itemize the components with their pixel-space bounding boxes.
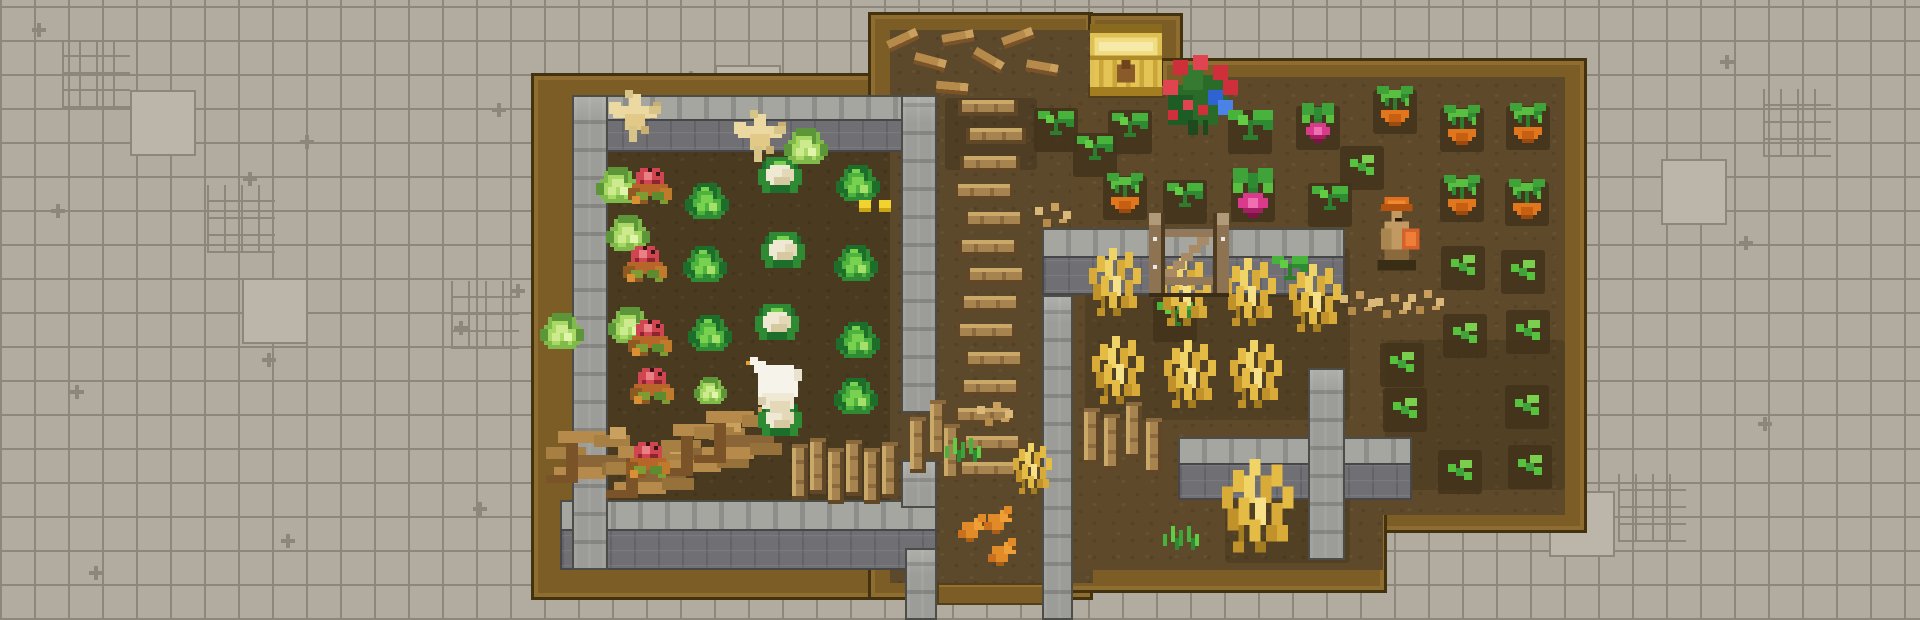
- tomato-sprite[interactable]: [628, 168, 672, 216]
- sprout-sprite[interactable]: [1516, 320, 1540, 340]
- sprout-sprite[interactable]: [1393, 398, 1417, 418]
- feed-sprite: [977, 402, 1017, 426]
- floor-plus-motif: [94, 566, 98, 580]
- plank-v-sprite: [1084, 408, 1100, 464]
- plank-v-sprite: [1146, 418, 1162, 474]
- hay-sprite[interactable]: [1164, 340, 1216, 408]
- plank-h-sprite: [956, 324, 1016, 340]
- floor-plus-motif: [56, 204, 60, 218]
- carrot-sprite[interactable]: [1373, 86, 1417, 130]
- plank-v-sprite: [810, 438, 826, 494]
- feed-sprite: [1408, 290, 1448, 314]
- plank-h-sprite: [958, 240, 1018, 256]
- hay-sprite[interactable]: [1230, 340, 1282, 408]
- carrot-sprite[interactable]: [1505, 179, 1549, 223]
- floor-smallgrid-tile: [62, 40, 130, 108]
- seedling-sprite[interactable]: [1112, 113, 1148, 145]
- chick-sprite[interactable]: [958, 514, 986, 542]
- stone-wall-cap: [1178, 437, 1412, 463]
- cabbage-light-sprite[interactable]: [540, 313, 584, 353]
- cabbage-sprite[interactable]: [688, 315, 732, 355]
- plank-h-sprite: [964, 212, 1024, 228]
- plank-h-sprite: [960, 380, 1020, 396]
- floor-highlight-tile: [130, 90, 196, 156]
- feed-sprite: [1340, 291, 1380, 315]
- sprout-sprite[interactable]: [1451, 255, 1475, 275]
- cauliflower-sprite[interactable]: [755, 300, 799, 344]
- tomato-sprite[interactable]: [628, 320, 672, 368]
- floor-plus-motif: [248, 172, 252, 186]
- cabbage-light-sprite[interactable]: [784, 128, 828, 168]
- chest-sprite[interactable]: [1090, 24, 1162, 96]
- plank-v-sprite: [792, 444, 808, 500]
- cabbage-sprite[interactable]: [834, 245, 878, 285]
- floor-highlight-tile: [242, 278, 308, 344]
- sprout-sprite[interactable]: [1515, 395, 1539, 415]
- gate-sprite[interactable]: [1149, 213, 1229, 297]
- hay-sprite[interactable]: [1289, 264, 1341, 332]
- plank-v-sprite: [1104, 414, 1120, 470]
- seedling-sprite[interactable]: [1312, 186, 1348, 218]
- cauliflower-sprite[interactable]: [761, 228, 805, 272]
- hay-sprite[interactable]: [1013, 443, 1052, 494]
- sprout-sprite[interactable]: [1511, 260, 1535, 280]
- feed-sprite: [1035, 203, 1075, 227]
- cabbage-sprite[interactable]: [685, 183, 729, 223]
- stone-wall: [1178, 463, 1412, 500]
- floor-plus-motif: [286, 534, 290, 548]
- sprout-sprite[interactable]: [1448, 460, 1472, 480]
- floor-plus-motif: [497, 103, 501, 117]
- plank-v-sprite: [1126, 402, 1142, 458]
- floor-plus-motif: [37, 23, 41, 37]
- dwarf-sprite[interactable]: [1374, 197, 1420, 274]
- plank-v-sprite: [864, 448, 880, 504]
- cabbage-sprite[interactable]: [683, 246, 727, 286]
- floor-plus-motif: [75, 385, 79, 399]
- bird-cream-sprite[interactable]: [605, 90, 665, 150]
- seedling-sprite[interactable]: [1077, 136, 1113, 168]
- seedling-sprite[interactable]: [1167, 183, 1203, 215]
- chick-sprite[interactable]: [988, 538, 1016, 566]
- floor-plus-motif: [1744, 236, 1748, 250]
- plank-h-sprite: [964, 352, 1024, 368]
- sprout-sprite[interactable]: [1390, 352, 1414, 372]
- plank-v-sprite: [882, 442, 898, 498]
- stone-wall-column: [905, 548, 937, 620]
- hay-sprite[interactable]: [1222, 459, 1294, 553]
- floor-smallgrid-tile: [207, 185, 275, 253]
- stone-wall: [560, 529, 937, 570]
- stone-wall-column: [1308, 368, 1345, 560]
- plank-h-sprite: [960, 296, 1020, 312]
- plank-v-sprite: [846, 440, 862, 496]
- sprout-sprite[interactable]: [1453, 323, 1477, 343]
- sprout-sprite[interactable]: [1518, 455, 1542, 475]
- cabbage-sprite[interactable]: [836, 322, 880, 362]
- plank-v-sprite: [828, 448, 844, 504]
- plank-h-sprite: [958, 100, 1018, 116]
- floor-smallgrid-tile: [1763, 89, 1831, 157]
- carrot-sprite[interactable]: [1103, 173, 1147, 217]
- stone-wall-cap: [560, 500, 937, 529]
- carrot-sprite[interactable]: [1506, 103, 1550, 147]
- game-viewport[interactable]: [0, 0, 1920, 620]
- bird-white-sprite[interactable]: [746, 353, 806, 417]
- radish-sprite[interactable]: [1228, 168, 1278, 223]
- cabbage-sprite[interactable]: [836, 165, 880, 205]
- yellow-item-sprite[interactable]: [859, 200, 891, 216]
- hay-sprite[interactable]: [1224, 258, 1276, 326]
- plank-h-sprite: [960, 156, 1020, 172]
- plank-h-sprite: [954, 184, 1014, 200]
- plank-v-sprite: [910, 417, 926, 473]
- tomato-sprite[interactable]: [623, 246, 667, 294]
- tomato-sprite[interactable]: [626, 442, 670, 490]
- plank-h-sprite: [966, 128, 1026, 144]
- plank-h-sprite: [966, 268, 1026, 284]
- carrot-sprite[interactable]: [1440, 105, 1484, 149]
- cabbage-sprite[interactable]: [834, 378, 878, 418]
- stone-wall-column: [901, 95, 937, 413]
- sprout-sprite[interactable]: [1350, 155, 1374, 175]
- grass-sprite: [945, 438, 985, 462]
- tomato-sprite[interactable]: [630, 368, 674, 416]
- bird-cream-sprite[interactable]: [730, 110, 790, 170]
- floor-plus-motif: [305, 135, 309, 149]
- radish-sprite[interactable]: [1298, 103, 1338, 147]
- hay-sprite[interactable]: [1092, 336, 1144, 404]
- grass-sprite: [1163, 526, 1203, 550]
- floor-smallgrid-tile: [451, 281, 519, 349]
- carrot-sprite[interactable]: [1440, 175, 1484, 219]
- floor-plus-motif: [1763, 417, 1767, 431]
- floor-smallgrid-tile: [1618, 474, 1686, 542]
- flowerbush-sprite[interactable]: [1158, 55, 1238, 135]
- hay-sprite[interactable]: [1089, 248, 1141, 316]
- seedling-sprite[interactable]: [1228, 110, 1273, 150]
- floor-highlight-tile: [1661, 159, 1727, 225]
- seedling-sprite[interactable]: [1038, 111, 1074, 143]
- floor-plus-motif: [478, 502, 482, 516]
- floor-plus-motif: [1725, 55, 1729, 69]
- plank-h-sprite: [958, 462, 1018, 478]
- chick-sprite[interactable]: [984, 506, 1012, 534]
- floor-plus-motif: [267, 353, 271, 367]
- cabbage-light-sprite[interactable]: [694, 377, 727, 407]
